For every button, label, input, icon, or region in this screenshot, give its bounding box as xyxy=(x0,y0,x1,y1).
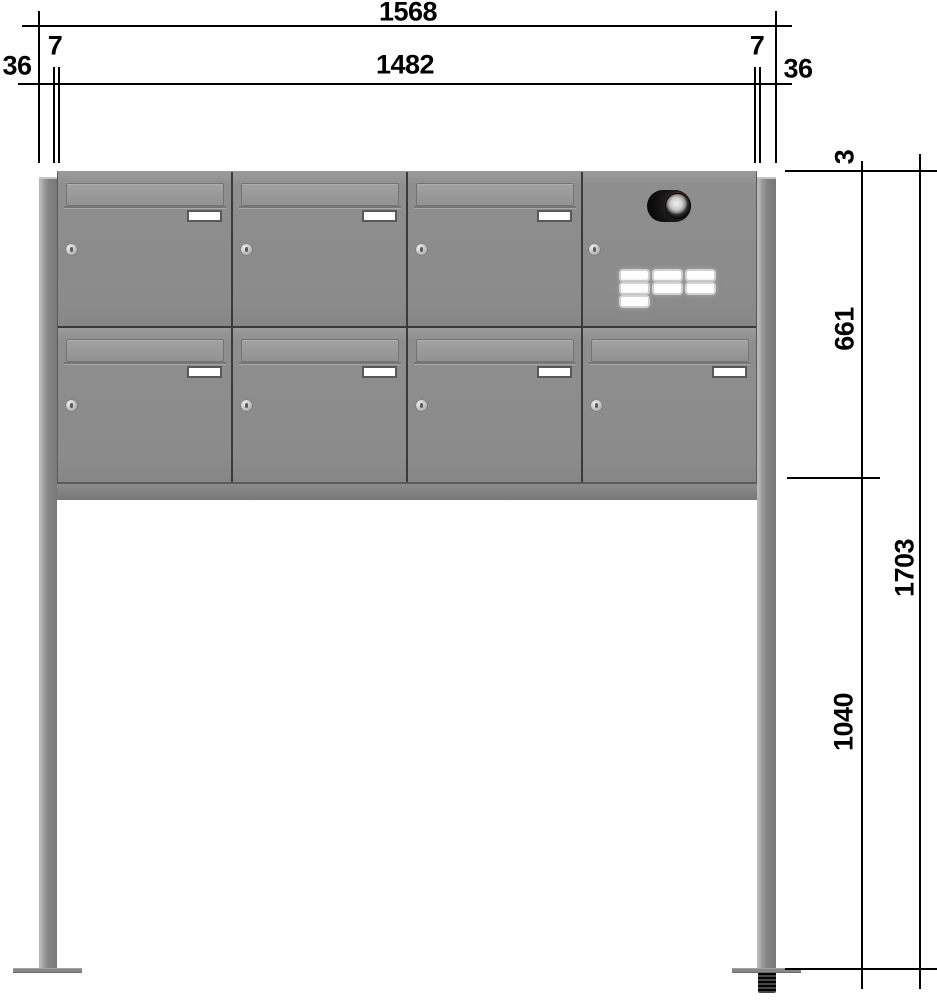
letter-flap xyxy=(416,183,574,206)
flap-lip xyxy=(64,362,226,364)
dim-label-side-offset-right: 36 xyxy=(783,56,812,83)
camera-lens-icon xyxy=(665,193,691,219)
extension-line-right-outer xyxy=(775,11,777,163)
dim-label-post-gap-right: 7 xyxy=(750,33,765,60)
extension-line-left-outer xyxy=(38,11,40,163)
name-plate xyxy=(187,210,222,222)
mailbox-door-4 xyxy=(58,328,231,482)
dim-label-overall-width: 1568 xyxy=(379,0,437,26)
cabinet-bottom-rail xyxy=(57,483,757,500)
lock-cylinder-icon xyxy=(588,243,601,256)
flap-lip xyxy=(64,206,226,208)
bell-button xyxy=(621,297,648,306)
extension-line-cabinet-bottom xyxy=(787,477,880,479)
extension-line-ground xyxy=(785,968,937,970)
dim-label-cabinet-height: 661 xyxy=(832,307,859,351)
extension-line-right-inner-b xyxy=(759,67,761,163)
lock-cylinder-icon xyxy=(240,399,253,412)
name-plate xyxy=(537,210,572,222)
bell-button xyxy=(687,271,714,280)
mailbox-door-6 xyxy=(408,328,581,482)
bell-button xyxy=(621,271,648,280)
extension-line-left-inner-b xyxy=(58,67,60,163)
name-plate xyxy=(712,366,747,378)
dim-label-body-width: 1482 xyxy=(376,52,434,79)
dim-label-side-offset-left: 36 xyxy=(2,53,31,80)
letter-flap xyxy=(416,339,574,362)
flap-lip xyxy=(239,206,401,208)
camera-icon xyxy=(647,190,691,222)
extension-line-right-inner-a xyxy=(754,67,756,163)
extension-line-top xyxy=(785,170,937,172)
dim-label-top-clearance: 3 xyxy=(832,150,859,165)
name-plate xyxy=(362,210,397,222)
intercom-panel xyxy=(583,172,756,326)
letter-flap xyxy=(241,183,399,206)
mailbox-door-2 xyxy=(233,172,406,326)
lock-cylinder-icon xyxy=(415,399,428,412)
flap-lip xyxy=(414,206,576,208)
support-post-left xyxy=(39,177,57,971)
letter-flap xyxy=(241,339,399,362)
flap-lip xyxy=(239,362,401,364)
mailbox-door-5 xyxy=(233,328,406,482)
dim-line-cabinet-height xyxy=(861,161,863,989)
letter-flap xyxy=(66,183,224,206)
technical-drawing-letterbox-stand: 1568 1482 7 7 36 36 3 661 1040 1703 xyxy=(0,0,937,1000)
letterbox-cabinet xyxy=(57,171,757,500)
mailbox-door-1 xyxy=(58,172,231,326)
name-plate xyxy=(187,366,222,378)
dim-line-body-width xyxy=(18,83,792,85)
mailbox-door-3 xyxy=(408,172,581,326)
lock-cylinder-icon xyxy=(240,243,253,256)
lock-cylinder-icon xyxy=(590,399,603,412)
name-plate xyxy=(537,366,572,378)
bell-button xyxy=(654,271,681,280)
anchor-bolt-icon xyxy=(758,973,776,993)
letter-flap xyxy=(66,339,224,362)
bell-button xyxy=(621,284,648,293)
flap-lip xyxy=(414,362,576,364)
dim-label-post-gap-left: 7 xyxy=(48,33,63,60)
lock-cylinder-icon xyxy=(415,243,428,256)
name-plate xyxy=(362,366,397,378)
flap-lip xyxy=(589,362,751,364)
dim-label-total-height: 1703 xyxy=(892,539,919,597)
bell-button xyxy=(687,284,714,293)
lock-cylinder-icon xyxy=(65,399,78,412)
door-grid xyxy=(57,171,757,483)
lock-cylinder-icon xyxy=(65,243,78,256)
bell-button xyxy=(654,284,681,293)
extension-line-left-inner-a xyxy=(53,67,55,163)
foot-plate-left xyxy=(13,968,82,973)
support-post-right xyxy=(757,177,776,971)
mailbox-door-7 xyxy=(583,328,756,482)
dim-label-post-ground-height: 1040 xyxy=(831,693,858,751)
letter-flap xyxy=(591,339,749,362)
